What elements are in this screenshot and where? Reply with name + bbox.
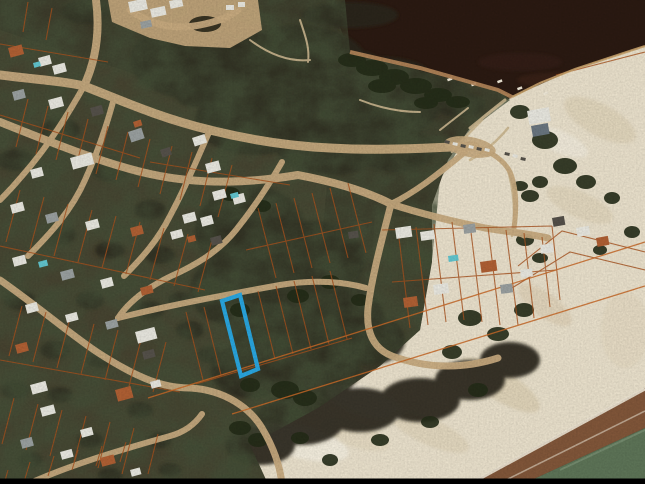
- letterbox-bar: [0, 479, 645, 484]
- satellite-map-canvas: [0, 0, 645, 484]
- satellite-map: [0, 0, 645, 484]
- grain-overlay: [0, 0, 645, 484]
